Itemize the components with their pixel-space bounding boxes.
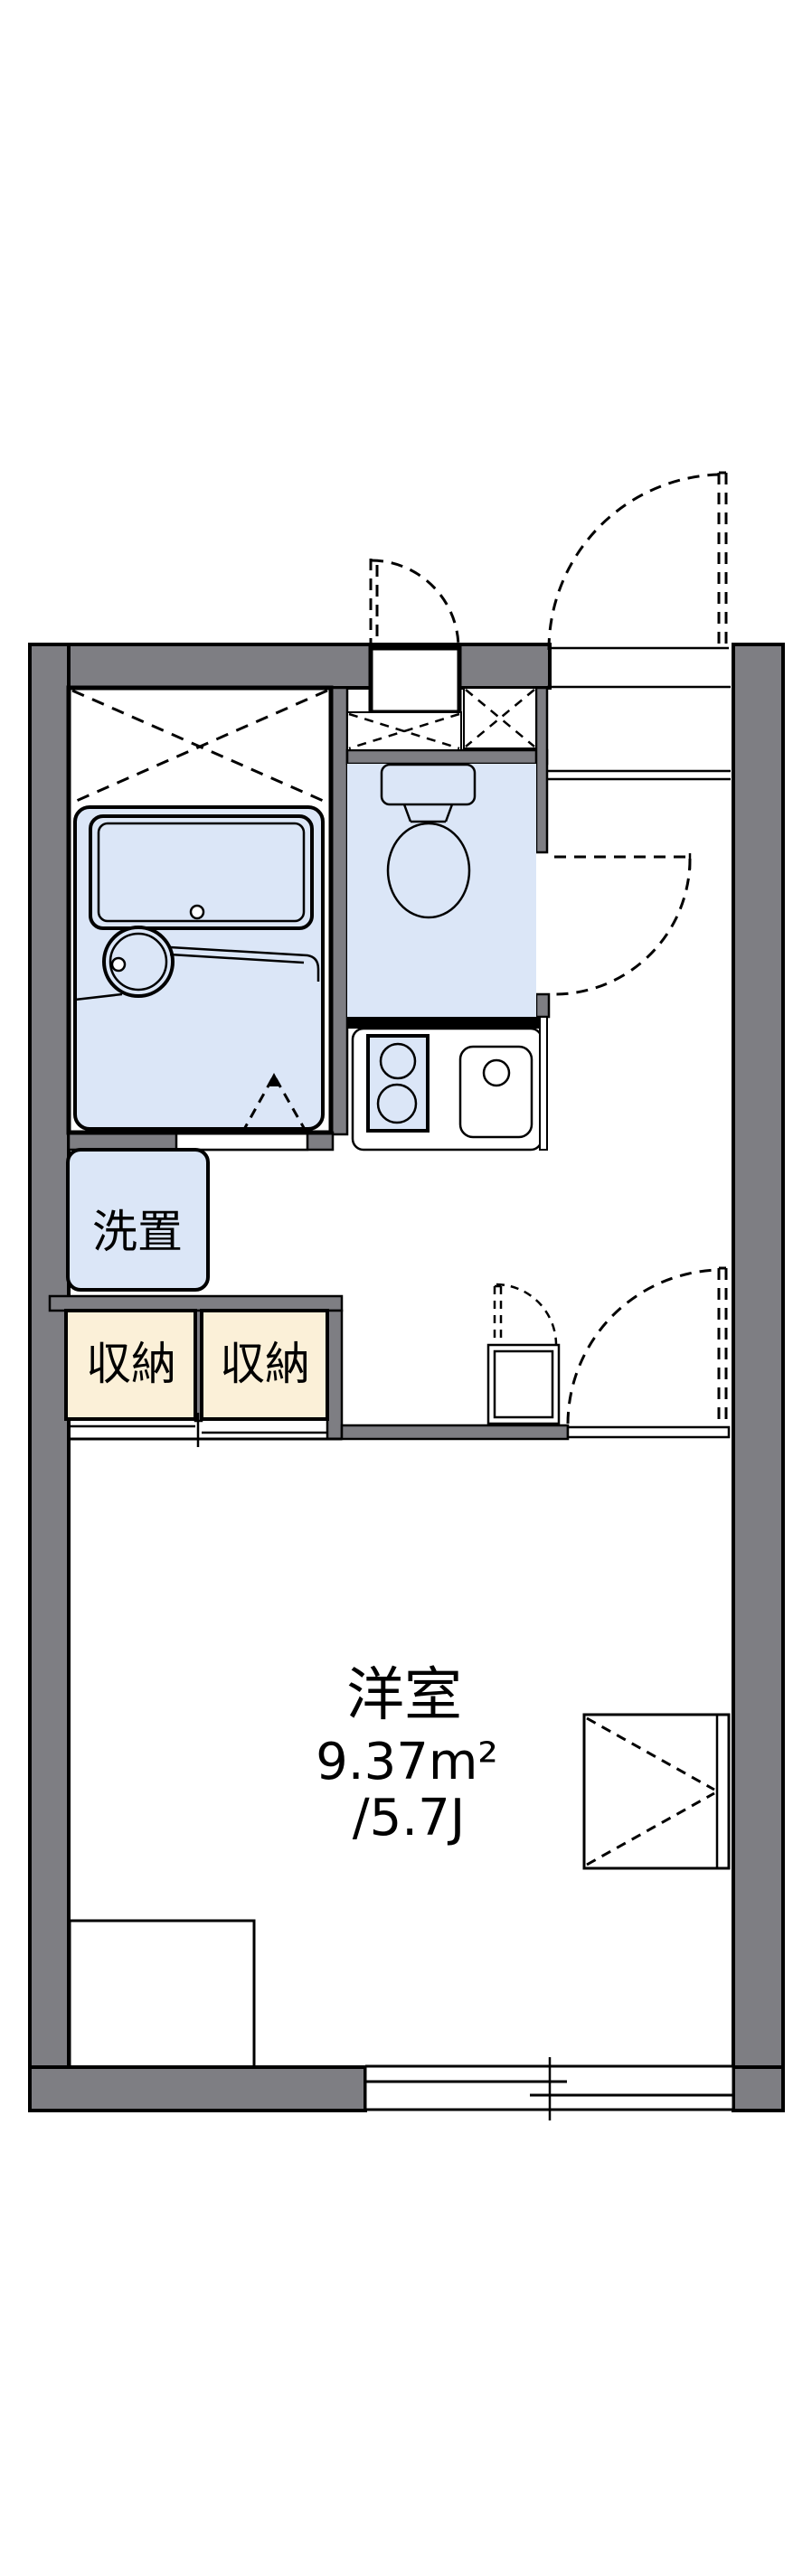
toilet-door-swing-arc [554,859,690,994]
entrance-door-leaf [719,473,726,648]
wall-bottom-right [733,2067,783,2111]
wall-top [30,644,550,688]
meter-box-door-leaf [371,559,377,648]
bath-door-threshold [176,1133,307,1150]
washbasin-drain [112,958,125,971]
closet-right-label: 収納 [220,1338,310,1390]
toilet-room [347,764,690,1017]
closet-left-label: 収納 [86,1338,176,1390]
meter-box-niche [371,648,459,712]
wall-hall-bottom [342,1425,568,1439]
main-room-label: 洋室 [346,1662,462,1729]
main-room: 洋室 9.37m² /5.7J [70,1662,729,2067]
main-room-door-leaf [719,1268,726,1424]
wall-toilet-door-stub [536,994,549,1017]
main-room-door-threshold [568,1427,729,1437]
main-room-door [568,1268,726,1424]
stove-unit [368,1036,428,1131]
utility-door-swing-arc [496,1284,556,1344]
laundry-label: 洗置 [92,1206,183,1258]
kitchen-right-edge [540,1017,547,1150]
wall-left [30,644,69,2111]
cabinet-right-box [464,688,536,748]
kitchen [353,1017,547,1150]
bed-space-rect [70,1921,254,2067]
meter-box-door-swing-arc [372,560,458,647]
bay-unit-dash-2 [587,1793,714,1865]
wall-bottom-left [30,2067,365,2111]
wall-closet-right [327,1311,342,1439]
utility-box [488,1284,559,1424]
floorplan-page: 洗置 収納 収納 洋室 9.37m² /5.7J [0,0,812,2576]
main-room-area-tatami: /5.7J [353,1789,465,1847]
wall-laundry-closet [50,1296,342,1311]
wall-toilet-bottom [347,1017,540,1029]
wall-right [733,644,783,2111]
utility-box-inner [495,1351,552,1417]
bay-unit-box [584,1715,729,1868]
main-room-area-sqm: 9.37m² [316,1733,498,1791]
bathroom [69,688,331,1133]
wall-bath-toilet-divider [331,688,347,1134]
floor-plan: 洗置 収納 収納 洋室 9.37m² /5.7J [0,0,812,2576]
main-room-door-swing-arc [568,1270,719,1424]
balcony-window [365,2057,733,2120]
entrance-door-swing-arc [549,475,719,650]
utility-box-outer [488,1345,559,1424]
toilet-floor [347,764,536,1017]
wall-under-cabinets [347,750,547,764]
sink-drain [484,1060,509,1086]
bay-unit-dash-1 [587,1718,714,1790]
utility-door-leaf [495,1286,501,1343]
bathtub-drain [191,906,203,918]
wall-toilet-right [536,688,547,852]
